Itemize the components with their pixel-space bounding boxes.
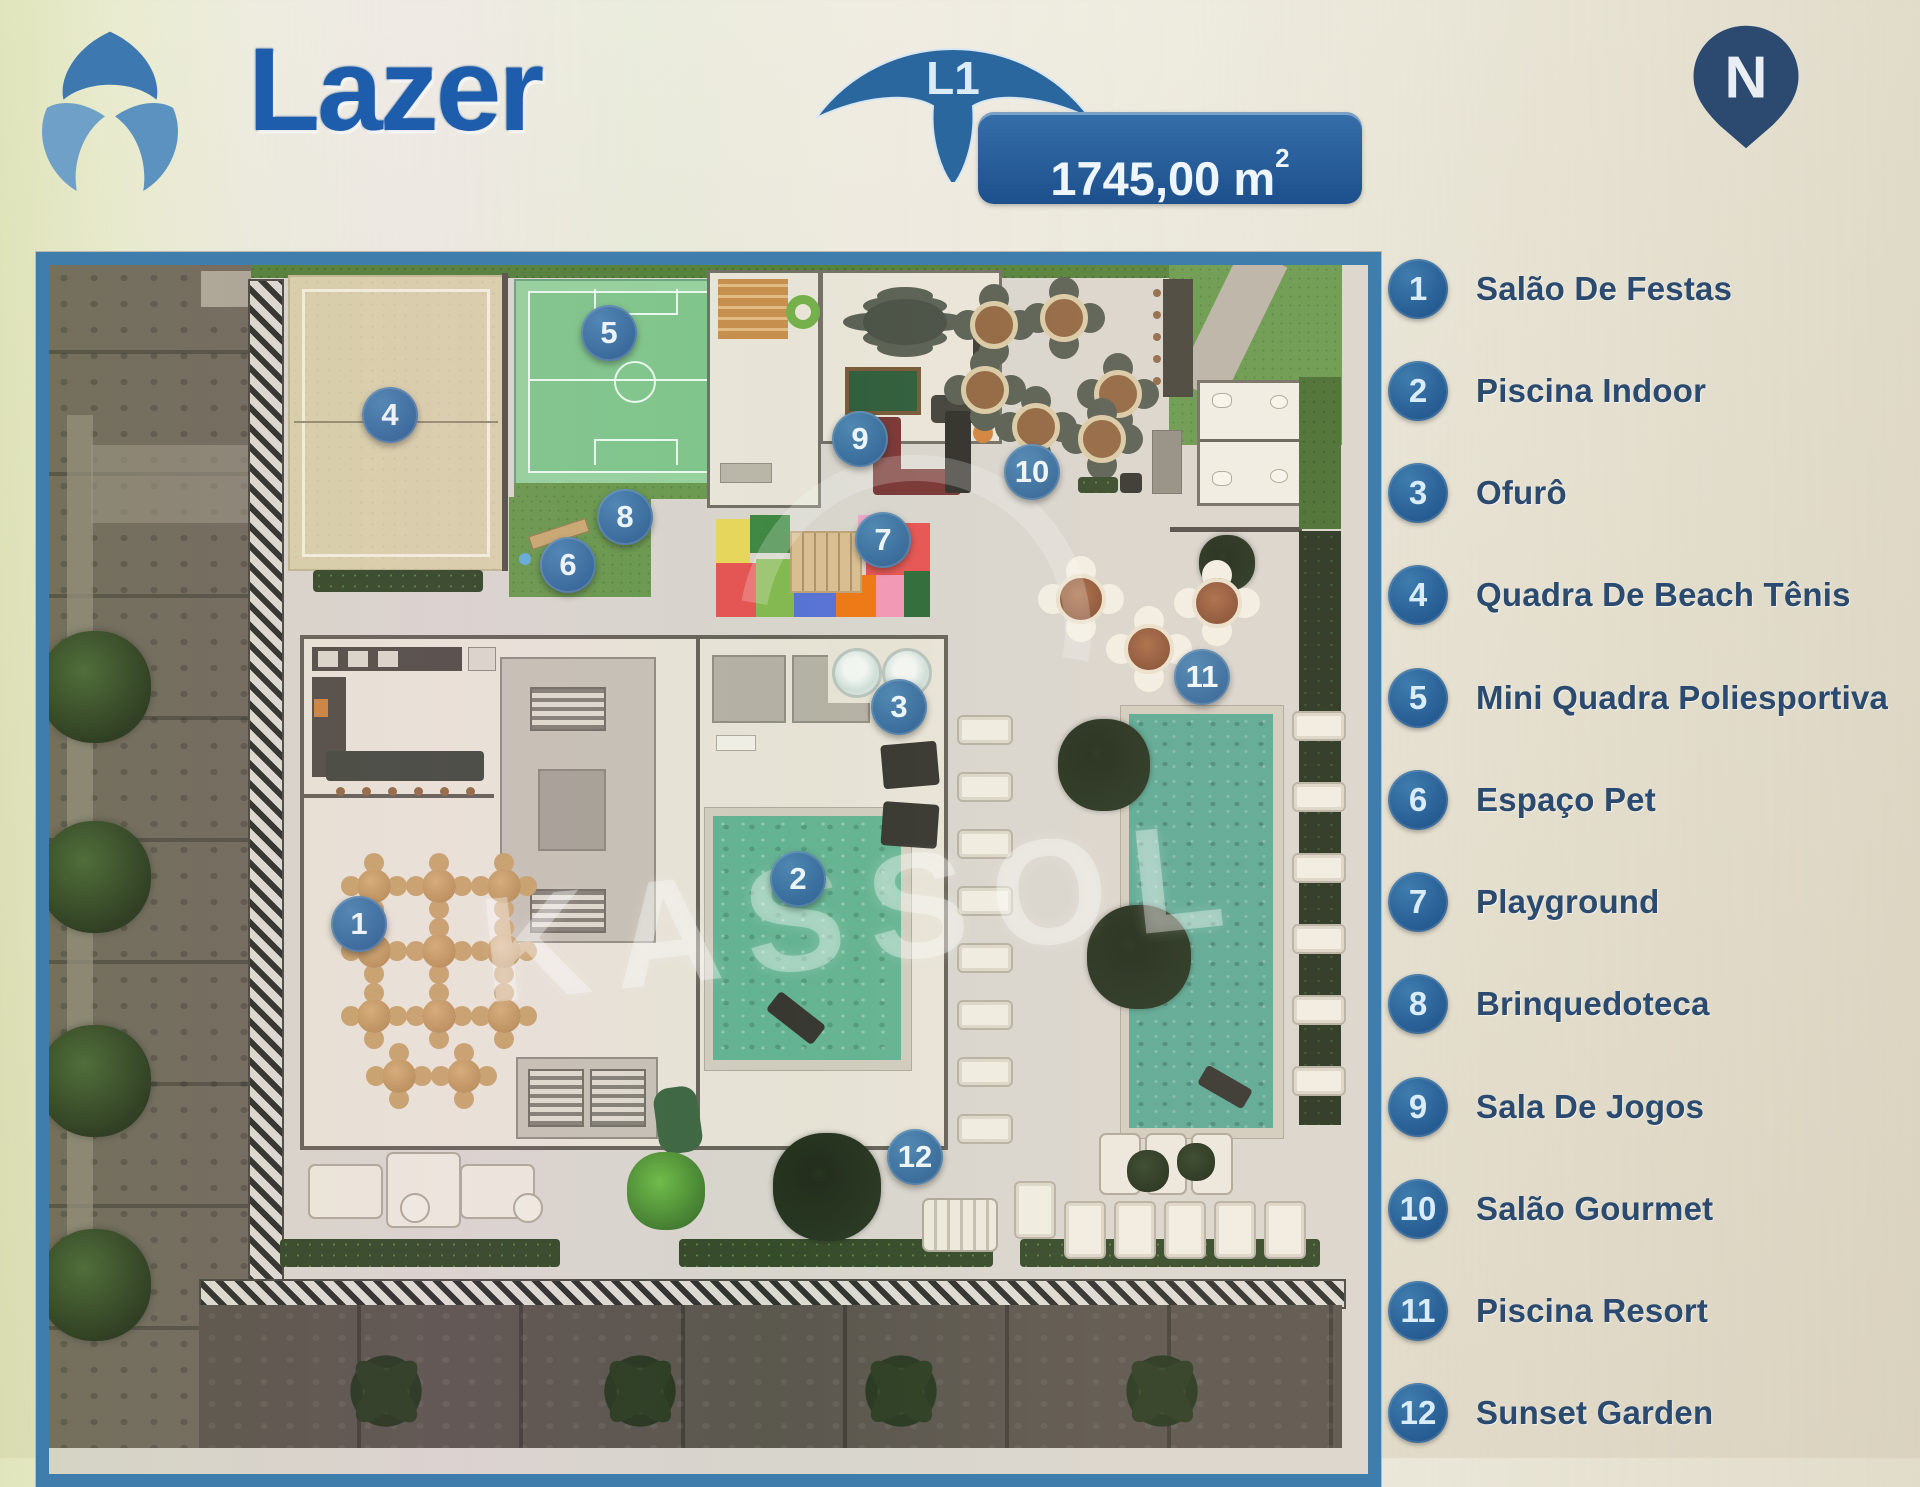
sun-lounger [1114, 1201, 1156, 1259]
center-circle [614, 361, 656, 403]
bar-stools [1153, 289, 1161, 297]
legend-item-11: 11 Piscina Resort [1388, 1280, 1708, 1342]
side-table [513, 1193, 543, 1223]
bush [627, 1152, 705, 1230]
legend-number: 12 [1388, 1383, 1448, 1443]
legend-label: Sala De Jogos [1476, 1088, 1704, 1126]
map-marker-8: 8 [597, 489, 653, 545]
legend-item-4: 4 Quadra De Beach Tênis [1388, 564, 1851, 626]
sun-lounger [957, 1057, 1013, 1087]
legend-number: 8 [1388, 974, 1448, 1034]
grill-cart [1120, 473, 1142, 493]
tree [49, 631, 151, 743]
tree [49, 1229, 151, 1341]
legend-number: 2 [1388, 361, 1448, 421]
planter-row [313, 570, 483, 592]
restrooms [1197, 380, 1309, 506]
legend-item-12: 12 Sunset Garden [1388, 1382, 1713, 1444]
map-marker-7: 7 [855, 512, 911, 568]
legend-label: Mini Quadra Poliesportiva [1476, 679, 1888, 717]
party-table [357, 999, 391, 1033]
map-marker-3: 3 [871, 679, 927, 735]
legend-label: Ofurô [1476, 474, 1567, 512]
bush [1177, 1143, 1215, 1181]
legend-number: 6 [1388, 770, 1448, 830]
legend-number: 7 [1388, 872, 1448, 932]
legend-item-8: 8 Brinquedoteca [1388, 973, 1710, 1035]
restroom-divider [1200, 439, 1300, 442]
party-table [422, 934, 456, 968]
legend-number: 4 [1388, 565, 1448, 625]
playroom [707, 270, 821, 508]
floor-plan: KASSOL 1 2 3 4 5 6 7 8 9 10 11 12 [36, 252, 1381, 1487]
bench [716, 735, 756, 751]
sink [1270, 395, 1288, 409]
bush [1127, 1150, 1169, 1192]
map-marker-11: 11 [1174, 649, 1230, 705]
palm-tree [592, 1343, 688, 1439]
sun-lounger [1064, 1201, 1106, 1259]
parasol-table [1124, 624, 1174, 674]
bar-counter [326, 751, 484, 781]
pet-toy [519, 553, 531, 565]
pergola [922, 1198, 998, 1252]
legend-number: 11 [1388, 1281, 1448, 1341]
play-tile [716, 519, 750, 563]
equipment-box [1152, 430, 1182, 494]
party-table [447, 1059, 481, 1093]
legend-label: Sunset Garden [1476, 1394, 1713, 1432]
map-marker-2: 2 [770, 851, 826, 907]
garden-hedge [280, 1239, 560, 1267]
bar-stools [336, 787, 345, 796]
stairs [590, 1069, 646, 1127]
sun-lounger [1292, 853, 1346, 883]
accent-chair [973, 423, 993, 443]
side-lawn [1299, 377, 1341, 529]
sidewalk [49, 265, 251, 1448]
legend-number: 9 [1388, 1077, 1448, 1137]
gourmet-table [1040, 294, 1088, 342]
gourmet-table [1078, 415, 1126, 463]
palm-logo-icon [27, 25, 193, 201]
map-marker-5: 5 [581, 305, 637, 361]
legend: 1 Salão De Festas 2 Piscina Indoor 3 Ofu… [1388, 0, 1913, 1458]
sink [1270, 469, 1288, 483]
fridge [468, 647, 496, 671]
toilet [1212, 471, 1232, 486]
tree [49, 1025, 151, 1137]
legend-number: 5 [1388, 668, 1448, 728]
appliance [348, 651, 368, 667]
legend-label: Espaço Pet [1476, 781, 1656, 819]
tree [49, 821, 151, 933]
paver-block [91, 445, 249, 523]
legend-label: Piscina Resort [1476, 1292, 1708, 1330]
party-table [422, 869, 456, 903]
crosswalk-border-vertical [248, 279, 284, 1285]
map-marker-9: 9 [832, 411, 888, 467]
sun-lounger [1292, 711, 1346, 741]
gourmet-table [1094, 370, 1142, 418]
legend-item-3: 3 Ofurô [1388, 462, 1567, 524]
sun-lounger [1264, 1201, 1306, 1259]
interior-wall [304, 794, 494, 798]
appliance [378, 651, 398, 667]
party-table [422, 999, 456, 1033]
pool-table [845, 367, 921, 415]
legend-item-1: 1 Salão De Festas [1388, 258, 1732, 320]
level-badge-label: L1 [926, 52, 980, 104]
gourmet-table [970, 301, 1018, 349]
party-table [382, 1059, 416, 1093]
service-cart [314, 699, 328, 717]
area-value: 1745,00 m [1050, 152, 1275, 205]
area-badge: 1745,00 m2 [978, 112, 1362, 204]
goal-box-bottom [594, 439, 678, 465]
legend-number: 10 [1388, 1179, 1448, 1239]
terrace-wall [1170, 527, 1302, 532]
page-title: Lazer [248, 22, 541, 158]
meeting-table [863, 299, 947, 345]
sun-lounger [1292, 995, 1346, 1025]
screenshot-root: Lazer L1 1745,00 m2 N [0, 0, 1920, 1458]
play-rug [718, 279, 788, 339]
legend-item-5: 5 Mini Quadra Poliesportiva [1388, 667, 1888, 729]
map-marker-6: 6 [540, 537, 596, 593]
map-marker-4: 4 [362, 387, 418, 443]
stairs [528, 1069, 584, 1127]
plan-canvas: KASSOL 1 2 3 4 5 6 7 8 9 10 11 12 [49, 265, 1368, 1474]
gourmet-bar [1163, 279, 1193, 397]
appliance [318, 651, 338, 667]
sun-lounger [1292, 1066, 1346, 1096]
legend-item-9: 9 Sala De Jogos [1388, 1076, 1704, 1138]
parasol-table [1192, 578, 1242, 628]
palm-tree [338, 1343, 434, 1439]
court-divider-wall [502, 273, 508, 571]
toilet [1212, 393, 1232, 408]
side-table [400, 1193, 430, 1223]
gourmet-table [961, 366, 1009, 414]
map-marker-1: 1 [331, 896, 387, 952]
map-marker-12: 12 [887, 1129, 943, 1185]
legend-label: Piscina Indoor [1476, 372, 1706, 410]
area-sup: 2 [1275, 143, 1289, 173]
legend-number: 1 [1388, 259, 1448, 319]
toy-ring [786, 295, 820, 329]
sun-lounger [1292, 924, 1346, 954]
planter-box [1078, 477, 1118, 493]
sun-lounger [1014, 1181, 1056, 1239]
legend-label: Playground [1476, 883, 1660, 921]
sun-lounger [1214, 1201, 1256, 1259]
map-marker-10: 10 [1004, 444, 1060, 500]
legend-label: Quadra De Beach Tênis [1476, 576, 1851, 614]
legend-label: Salão De Festas [1476, 270, 1732, 308]
legend-number: 3 [1388, 463, 1448, 523]
legend-item-2: 2 Piscina Indoor [1388, 360, 1706, 422]
outdoor-sofa [308, 1164, 383, 1219]
toy-shelf [720, 463, 772, 483]
sun-lounger [1164, 1201, 1206, 1259]
stairs [530, 687, 606, 731]
legend-label: Salão Gourmet [1476, 1190, 1713, 1228]
stair-block [516, 1057, 658, 1139]
tree [773, 1133, 881, 1241]
palm-tree [853, 1343, 949, 1439]
legend-item-10: 10 Salão Gourmet [1388, 1178, 1713, 1240]
elevator [538, 769, 606, 851]
legend-item-6: 6 Espaço Pet [1388, 769, 1656, 831]
sun-lounger [1292, 782, 1346, 812]
curb-pad [201, 271, 251, 307]
side-hedge [1299, 531, 1341, 1125]
sun-lounger [957, 1000, 1013, 1030]
legend-label: Brinquedoteca [1476, 985, 1710, 1023]
sun-lounger [957, 1114, 1013, 1144]
legend-item-7: 7 Playground [1388, 871, 1660, 933]
palm-tree [1114, 1343, 1210, 1439]
